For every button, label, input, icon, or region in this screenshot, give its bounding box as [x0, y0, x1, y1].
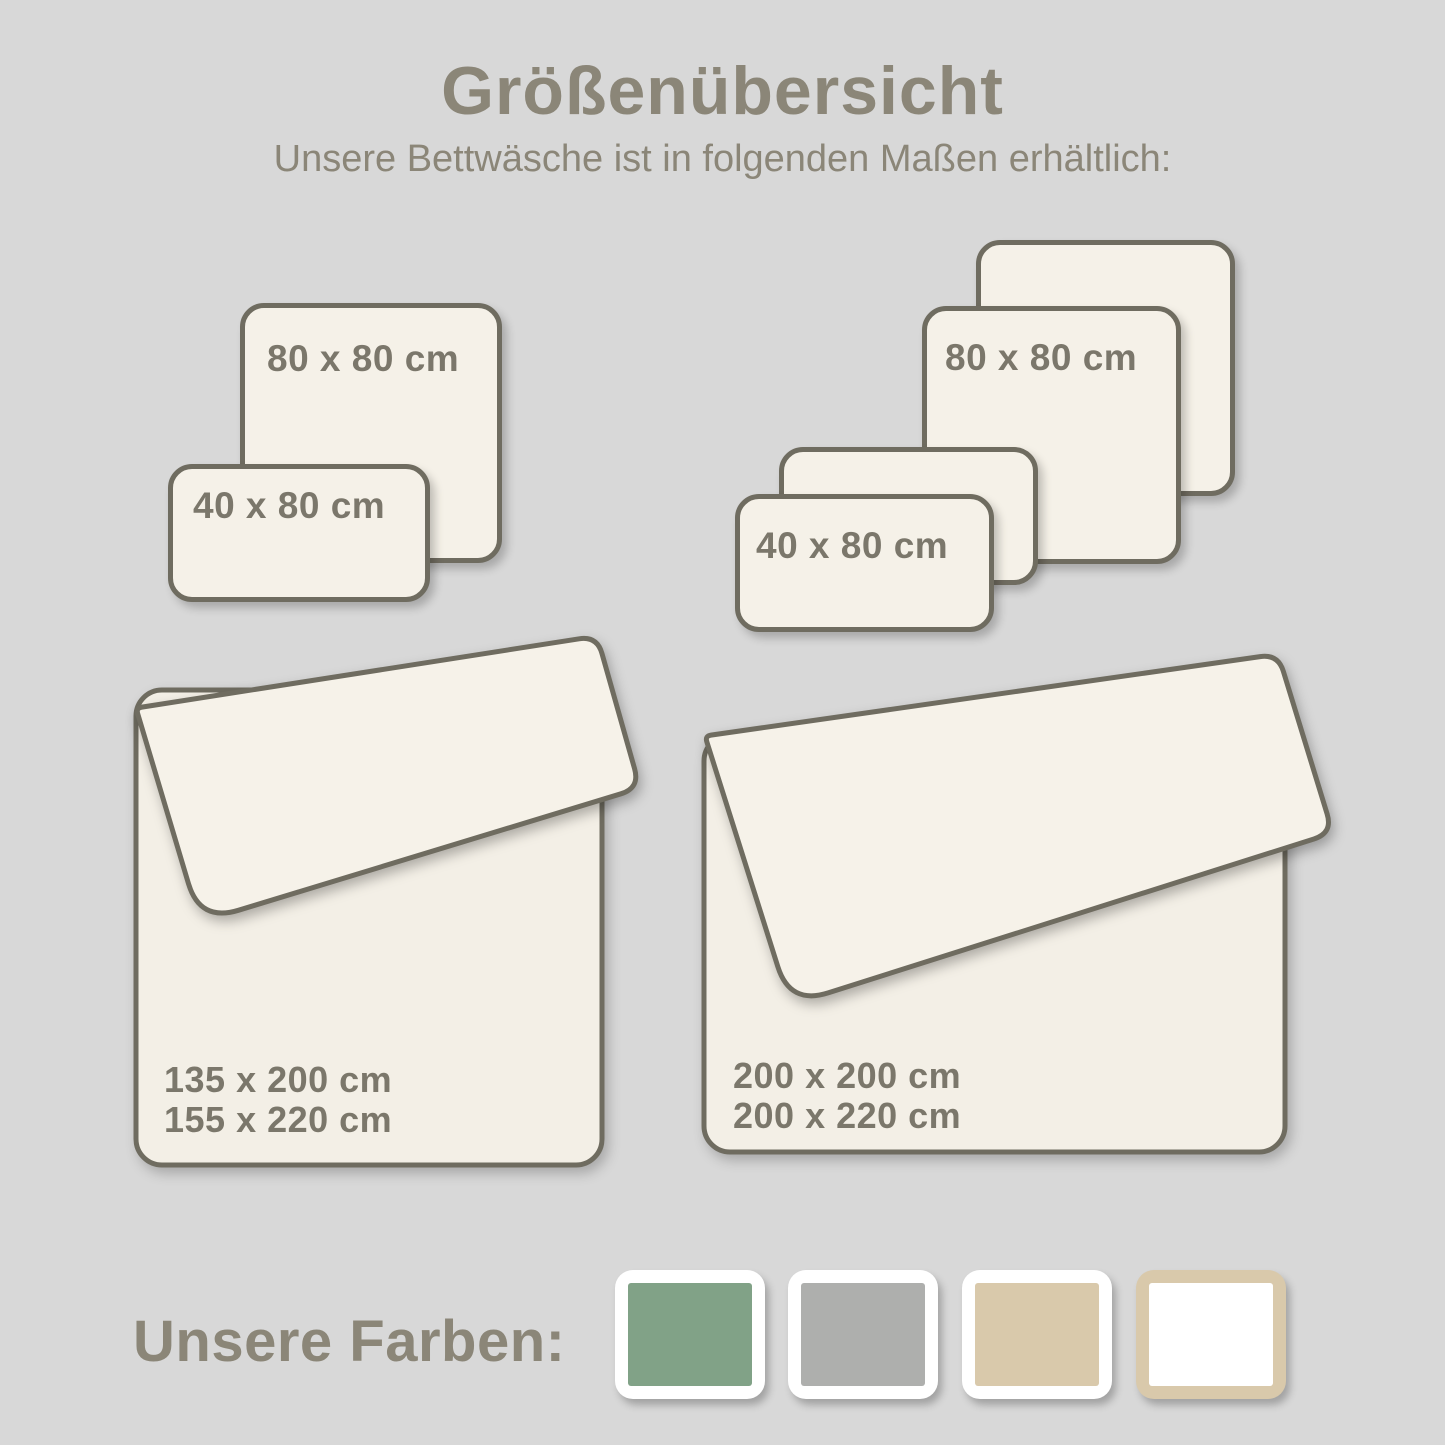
duvet-shapes — [0, 0, 1445, 1445]
colors-section-label: Unsere Farben: — [133, 1308, 565, 1375]
duvet-left-size-label: 135 x 200 cm 155 x 220 cm — [164, 1060, 392, 1140]
pillow-right-rect-size-label: 40 x 80 cm — [756, 525, 948, 567]
pillow-left-square-size-label: 80 x 80 cm — [267, 338, 459, 380]
color-swatch-gray — [788, 1270, 938, 1399]
pillow-right-square-size-label: 80 x 80 cm — [945, 337, 1137, 379]
pillow-left-rect-size-label: 40 x 80 cm — [193, 485, 385, 527]
color-swatch-green-fill — [628, 1283, 752, 1386]
duvet-right-size-line-2: 200 x 220 cm — [733, 1096, 961, 1136]
color-swatch-beige-fill — [975, 1283, 1099, 1386]
color-swatch-green — [615, 1270, 765, 1399]
color-swatch-gray-fill — [801, 1283, 925, 1386]
size-overview-infographic: Größenübersicht Unsere Bettwäsche ist in… — [0, 0, 1445, 1445]
pillow-left-rect: 40 x 80 cm — [168, 464, 430, 602]
duvet-left-size-line-2: 155 x 220 cm — [164, 1100, 392, 1140]
color-swatch-white — [1136, 1270, 1286, 1399]
duvet-left-size-line-1: 135 x 200 cm — [164, 1060, 392, 1100]
duvet-right-size-label: 200 x 200 cm 200 x 220 cm — [733, 1056, 961, 1136]
color-swatch-white-fill — [1149, 1283, 1273, 1386]
pillow-right-rect-front: 40 x 80 cm — [735, 494, 994, 632]
color-swatch-beige — [962, 1270, 1112, 1399]
duvet-right-size-line-1: 200 x 200 cm — [733, 1056, 961, 1096]
